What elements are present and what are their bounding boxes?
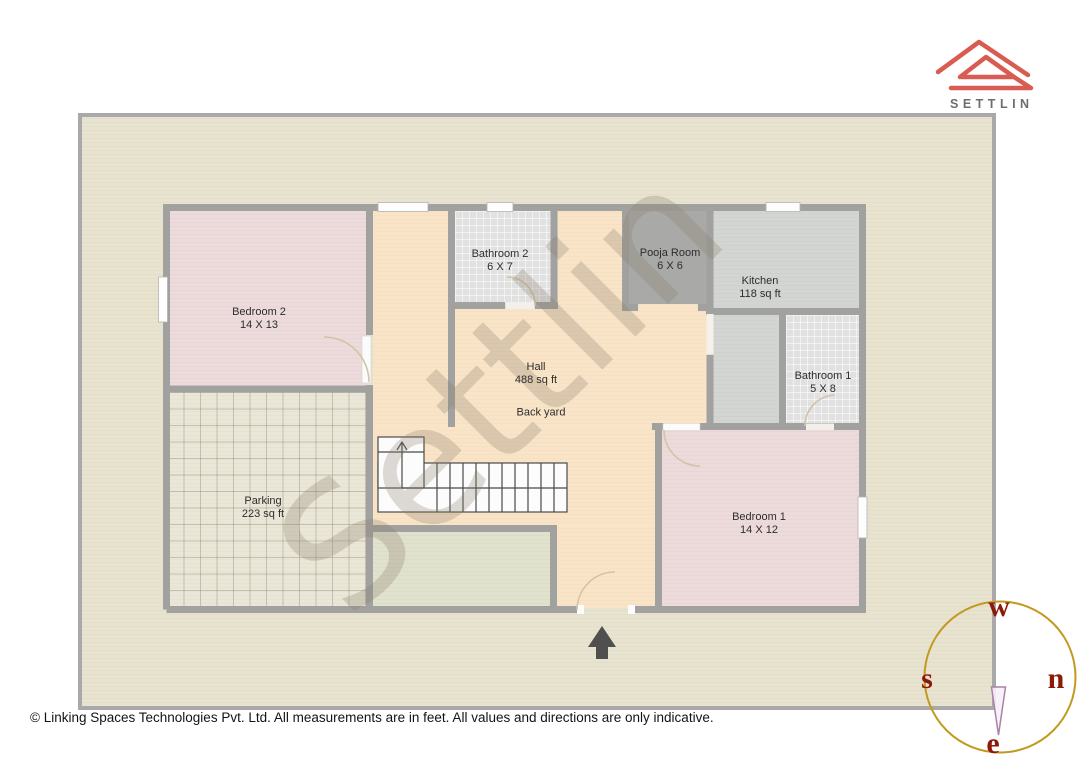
room-size: 6 X 6 xyxy=(640,260,701,273)
room-fill-hall-mid xyxy=(373,427,655,526)
room-fill-hall-main xyxy=(455,309,707,427)
brand-name: SETTLIN xyxy=(950,97,1034,111)
room-label-kitchen: Kitchen 118 sq ft xyxy=(739,275,780,301)
room-label-back-yard: Back yard xyxy=(517,407,566,420)
room-label-bedroom-1: Bedroom 1 14 X 12 xyxy=(732,511,786,537)
room-name: Hall xyxy=(515,361,557,374)
room-size: 14 X 12 xyxy=(732,524,786,537)
room-fill-kitchen-top xyxy=(713,211,859,309)
room-name: Bedroom 1 xyxy=(732,511,786,524)
room-name: Back yard xyxy=(517,407,566,420)
compass-right: n xyxy=(1048,662,1065,695)
room-name: Bedroom 2 xyxy=(232,306,286,319)
room-size: 223 sq ft xyxy=(242,508,284,521)
room-size: 14 X 13 xyxy=(232,319,286,332)
floor-plan-page: Settlin Bedroom 2 14 X 13 Bathroom 2 6 X… xyxy=(0,0,1080,764)
room-label-bathroom-2: Bathroom 2 6 X 7 xyxy=(472,248,529,274)
copyright-text: © Linking Spaces Technologies Pvt. Ltd. … xyxy=(30,710,714,725)
compass-bottom: e xyxy=(986,727,999,760)
room-name: Bathroom 1 xyxy=(795,370,852,383)
room-size: 118 sq ft xyxy=(739,288,780,301)
room-label-hall: Hall 488 sq ft xyxy=(515,361,557,387)
room-fill-courtyard xyxy=(373,532,550,607)
room-name: Bathroom 2 xyxy=(472,248,529,261)
room-size: 488 sq ft xyxy=(515,374,557,387)
room-fill-kitchen-left xyxy=(713,309,779,424)
settlin-roof-logo-icon xyxy=(938,42,1031,88)
room-label-bedroom-2: Bedroom 2 14 X 13 xyxy=(232,306,286,332)
room-fill-bedroom-2 xyxy=(167,211,367,386)
room-label-bathroom-1: Bathroom 1 5 X 8 xyxy=(795,370,852,396)
room-fill-corridor xyxy=(373,211,448,427)
room-label-pooja-room: Pooja Room 6 X 6 xyxy=(640,247,701,273)
room-label-parking: Parking 223 sq ft xyxy=(242,495,284,521)
room-size: 6 X 7 xyxy=(472,261,529,274)
room-fill-hall-top xyxy=(558,211,622,308)
room-name: Kitchen xyxy=(739,275,780,288)
room-name: Parking xyxy=(242,495,284,508)
room-fill-entry xyxy=(557,526,655,608)
room-size: 5 X 8 xyxy=(795,383,852,396)
room-name: Pooja Room xyxy=(640,247,701,260)
